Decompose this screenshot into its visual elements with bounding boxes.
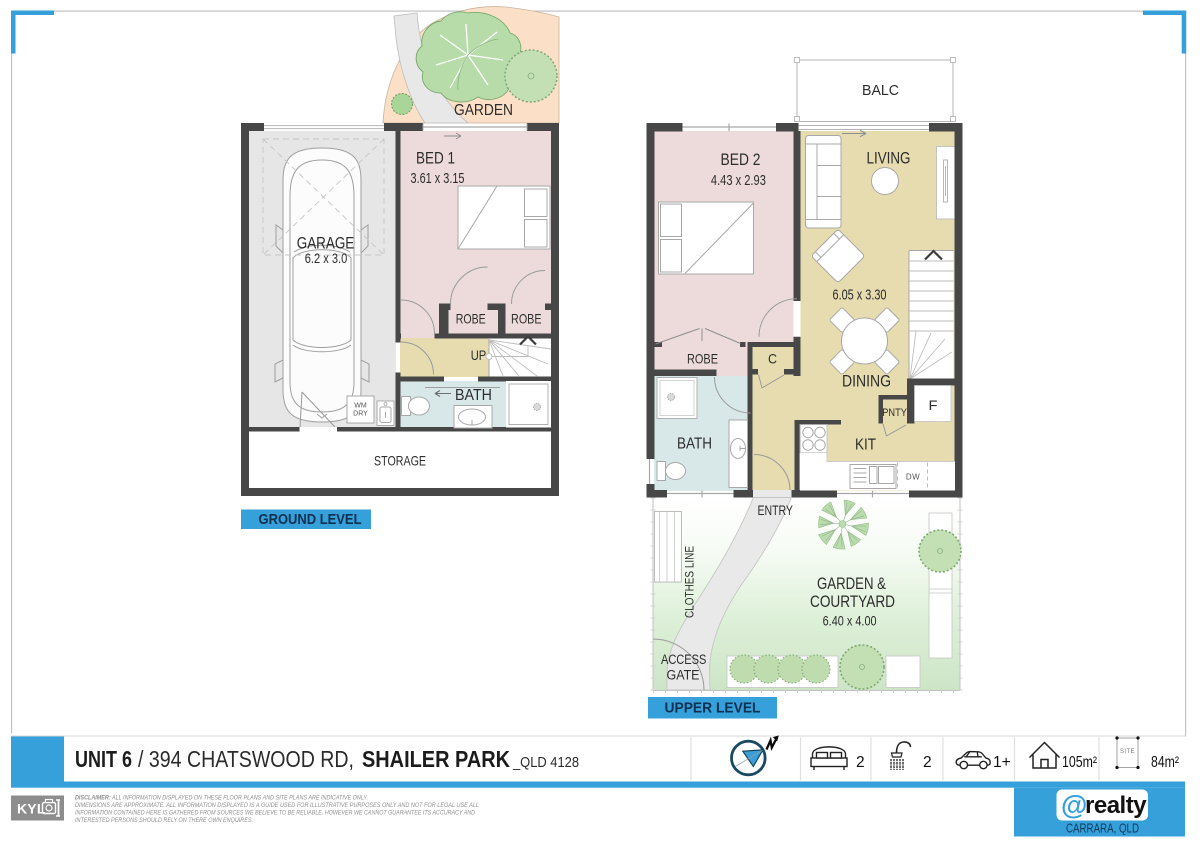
svg-text:DW: DW — [906, 473, 920, 482]
svg-text:UNIT 6: UNIT 6 — [75, 746, 132, 772]
svg-text:ROBE: ROBE — [456, 312, 486, 327]
svg-text:realty: realty — [1085, 792, 1147, 819]
svg-text:SITE: SITE — [1120, 749, 1135, 755]
svg-text:CARRARA, QLD: CARRARA, QLD — [1066, 821, 1139, 836]
svg-text:6.2 x 3.0: 6.2 x 3.0 — [305, 251, 348, 266]
svg-text:GARDEN: GARDEN — [454, 102, 513, 119]
svg-text:6.05 x 3.30: 6.05 x 3.30 — [833, 287, 887, 304]
svg-text:UPPER LEVEL: UPPER LEVEL — [665, 701, 761, 717]
svg-text:CLOTHES LINE: CLOTHES LINE — [683, 546, 697, 618]
svg-text:C: C — [768, 351, 777, 367]
svg-text:DIMENSIONS ARE APPROXIMATE. AL: DIMENSIONS ARE APPROXIMATE. ALL INFORMAT… — [75, 802, 479, 809]
svg-text:6.40 x 4.00: 6.40 x 4.00 — [823, 614, 877, 629]
svg-text:ENTRY: ENTRY — [757, 503, 793, 518]
svg-text:GARAGE: GARAGE — [297, 235, 355, 253]
svg-text:COURTYARD: COURTYARD — [810, 592, 895, 611]
svg-text:2: 2 — [856, 754, 865, 771]
svg-text:GARDEN &: GARDEN & — [817, 574, 887, 593]
svg-text:GATE: GATE — [667, 668, 700, 683]
svg-text:BATH: BATH — [677, 436, 712, 453]
svg-text:DISCLAIMER: ALL INFORMATION DI: DISCLAIMER: ALL INFORMATION DISPLAYED ON… — [75, 795, 368, 802]
svg-text:PNTY: PNTY — [882, 407, 907, 419]
svg-text:BED 2: BED 2 — [721, 150, 761, 169]
svg-text:84m²: 84m² — [1151, 754, 1179, 771]
svg-text:BALC: BALC — [862, 83, 899, 99]
svg-text:4.43 x 2.93: 4.43 x 2.93 — [711, 172, 766, 189]
svg-text:1+: 1+ — [993, 754, 1011, 771]
svg-text:WM: WM — [354, 403, 367, 410]
svg-text:ROBE: ROBE — [511, 312, 542, 327]
svg-text:GROUND LEVEL: GROUND LEVEL — [259, 512, 362, 528]
svg-text:_QLD 4128: _QLD 4128 — [512, 754, 579, 771]
svg-text:INFORMATION CONTAINED HERE IS: INFORMATION CONTAINED HERE IS GATHERED F… — [75, 810, 475, 817]
svg-text:UP: UP — [471, 348, 487, 363]
svg-text:LIVING: LIVING — [867, 149, 911, 168]
svg-text:SHAILER PARK: SHAILER PARK — [362, 746, 510, 772]
svg-text:/ 394 CHATSWOOD RD,: / 394 CHATSWOOD RD, — [138, 746, 354, 772]
svg-text:F: F — [929, 397, 938, 413]
svg-text:STORAGE: STORAGE — [374, 453, 426, 469]
svg-text:BATH: BATH — [455, 387, 492, 404]
svg-text:DINING: DINING — [842, 372, 891, 391]
svg-text:KYL: KYL — [17, 801, 46, 817]
svg-text:@: @ — [1061, 790, 1087, 820]
svg-text:ROBE: ROBE — [687, 352, 718, 367]
svg-text:BED 1: BED 1 — [416, 149, 455, 168]
svg-text:2: 2 — [923, 754, 932, 771]
svg-text:105m²: 105m² — [1062, 754, 1097, 771]
svg-text:KIT: KIT — [855, 437, 876, 454]
svg-text:INTERESTED PERSONS SHOULD RELY: INTERESTED PERSONS SHOULD RELY ON THERE … — [75, 817, 253, 824]
svg-text:DRY: DRY — [353, 411, 368, 418]
svg-text:3.61 x 3.15: 3.61 x 3.15 — [411, 170, 465, 187]
svg-text:ACCESS: ACCESS — [661, 652, 707, 667]
